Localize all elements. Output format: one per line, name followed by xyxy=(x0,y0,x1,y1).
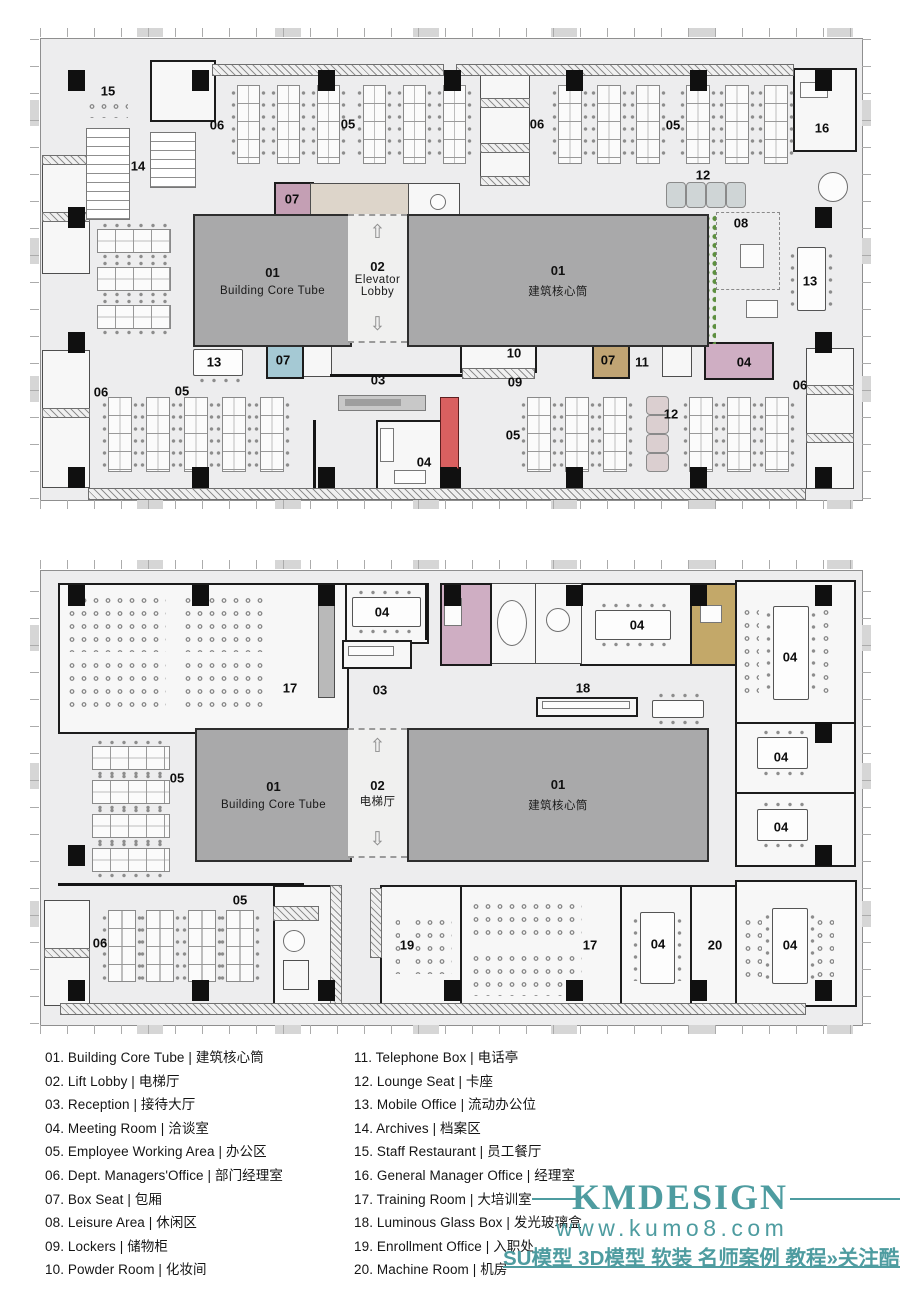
legend-item: 14. Archives | 档案区 xyxy=(354,1117,582,1141)
hatched-wall xyxy=(42,155,90,165)
desk-bank xyxy=(317,85,340,164)
room xyxy=(42,220,90,274)
legend-item: 05. Employee Working Area | 办公区 xyxy=(45,1140,283,1164)
plan1-elevator-lobby: ⇧ 02 Elevator Lobby ⇩ xyxy=(348,214,407,343)
room-number-label: 12 xyxy=(696,168,710,183)
room-number-label: 17 xyxy=(583,938,597,953)
legend-item: 15. Staff Restaurant | 员工餐厅 xyxy=(354,1140,582,1164)
room-number-label: 05 xyxy=(233,893,247,908)
hatched-wall xyxy=(462,368,535,379)
archive-shelves xyxy=(86,128,130,220)
shaft xyxy=(318,600,335,698)
plan2-facade-top xyxy=(40,560,861,569)
desk-bank xyxy=(92,848,170,872)
structural-column xyxy=(68,980,85,1001)
structural-column xyxy=(815,722,832,743)
structural-column xyxy=(68,585,85,606)
desk-bank xyxy=(97,229,171,253)
room-number-label: 13 xyxy=(803,274,817,289)
desk-bank xyxy=(565,397,589,472)
room-number-label: 07 xyxy=(285,192,299,207)
room-number-label: 08 xyxy=(734,216,748,231)
lounge-seat xyxy=(666,182,686,208)
hatched-wall xyxy=(44,948,90,958)
desk-bank xyxy=(97,305,171,329)
chair-rows xyxy=(741,606,759,694)
lobby-number: 02 xyxy=(360,778,396,793)
plan2-facade-right xyxy=(862,570,871,1024)
furniture xyxy=(746,300,778,318)
legend-item: 01. Building Core Tube | 建筑核心筒 xyxy=(45,1046,283,1070)
round-table xyxy=(818,172,848,202)
legend-item: 11. Telephone Box | 电话亭 xyxy=(354,1046,582,1070)
desk-bank xyxy=(92,746,170,770)
structural-column xyxy=(815,467,832,488)
desk-bank xyxy=(764,85,788,164)
wall-block xyxy=(440,467,457,488)
wall xyxy=(313,420,316,488)
hatched-wall xyxy=(88,488,806,500)
hatched-wall xyxy=(806,433,854,443)
structural-column xyxy=(566,980,583,1001)
lounge-seat xyxy=(646,434,669,453)
desk-bank xyxy=(108,910,136,982)
core-number: 01 xyxy=(265,265,279,280)
structural-column xyxy=(318,980,335,1001)
hatched-wall xyxy=(480,98,530,108)
room-number-label: 11 xyxy=(635,355,649,370)
structural-column xyxy=(444,70,461,91)
desk-bank xyxy=(363,85,386,164)
room xyxy=(480,66,530,185)
wall xyxy=(58,883,304,886)
structural-column xyxy=(815,332,832,353)
desk-bank xyxy=(108,397,132,472)
desk-bank xyxy=(765,397,789,472)
core-number: 01 xyxy=(266,779,280,794)
down-arrow-icon: ⇩ xyxy=(370,830,386,849)
room-number-label: 06 xyxy=(793,378,807,393)
desk-bank xyxy=(237,85,260,164)
hatched-wall xyxy=(370,888,382,958)
room-number-label: 04 xyxy=(774,820,788,835)
structural-column xyxy=(815,845,832,866)
desk-bank xyxy=(558,85,582,164)
round-table xyxy=(546,608,570,632)
plan1-facade-bottom xyxy=(40,500,861,509)
room-number-label: 05 xyxy=(170,771,184,786)
structural-column xyxy=(566,70,583,91)
archive-shelves xyxy=(150,132,196,188)
structural-column xyxy=(68,70,85,91)
room-number-label: 14 xyxy=(131,159,145,174)
desk-bank xyxy=(184,397,208,472)
structural-column xyxy=(690,980,707,1001)
legend-item: 09. Lockers | 储物柜 xyxy=(45,1235,283,1259)
lobby-name-line2: Lobby xyxy=(355,286,400,298)
plan1-facade-right xyxy=(862,38,871,499)
chair-rows xyxy=(814,916,834,978)
lounge-seat xyxy=(726,182,746,208)
structural-column xyxy=(192,585,209,606)
room-number-label: 04 xyxy=(783,938,797,953)
chair-rows xyxy=(66,659,166,715)
desk-bank xyxy=(727,397,751,472)
desk-bank xyxy=(686,85,710,164)
structural-column xyxy=(815,207,832,228)
room-number-label: 18 xyxy=(576,681,590,696)
room-number-label: 13 xyxy=(207,355,221,370)
structural-column xyxy=(192,980,209,1001)
legend-item: 07. Box Seat | 包厢 xyxy=(45,1188,283,1212)
room-number-label: 04 xyxy=(630,618,644,633)
room-number-label: 20 xyxy=(708,938,722,953)
desk-bank xyxy=(603,397,627,472)
hatched-wall xyxy=(456,64,794,76)
red-accent-wall xyxy=(440,397,459,469)
plan1-facade-top xyxy=(40,28,861,37)
chair-rows xyxy=(742,916,762,978)
structural-column xyxy=(815,980,832,1001)
structural-column xyxy=(444,585,461,606)
room xyxy=(42,350,90,412)
hatched-wall xyxy=(273,906,319,921)
room-number-label: 05 xyxy=(341,117,355,132)
structural-column xyxy=(192,467,209,488)
structural-column xyxy=(815,585,832,606)
room xyxy=(662,344,692,377)
legend-item: 02. Lift Lobby | 电梯厅 xyxy=(45,1070,283,1094)
chair-rows xyxy=(470,900,582,942)
structural-column xyxy=(318,585,335,606)
room-number-label: 09 xyxy=(508,375,522,390)
website-url: www.kumo8.com xyxy=(556,1215,788,1242)
desk-bank xyxy=(636,85,660,164)
room-number-label: 03 xyxy=(371,373,385,388)
core-name: 建筑核心筒 xyxy=(528,283,588,299)
room-number-label: 06 xyxy=(94,385,108,400)
hatched-wall xyxy=(42,408,90,418)
desk-bank xyxy=(97,267,171,291)
room-number-label: 04 xyxy=(651,937,665,952)
plan1-core-tube-left: 01 Building Core Tube xyxy=(193,214,352,347)
room-number-label: 04 xyxy=(417,455,431,470)
lobby-number: 02 xyxy=(355,259,400,274)
desk-bank xyxy=(403,85,426,164)
core-name: Building Core Tube xyxy=(221,799,326,811)
core-number: 01 xyxy=(551,263,565,278)
structural-column xyxy=(68,845,85,866)
legend-item: 10. Powder Room | 化妆间 xyxy=(45,1258,283,1282)
structural-column xyxy=(690,467,707,488)
room-number-label: 05 xyxy=(666,118,680,133)
room-number-label: 04 xyxy=(737,355,751,370)
desk-bank xyxy=(725,85,749,164)
chair-rows xyxy=(412,916,452,974)
brand-logo: KMDESIGN xyxy=(568,1176,792,1218)
plan2-elevator-lobby: ⇧ 02 电梯厅 ⇩ xyxy=(348,728,407,858)
hatched-wall xyxy=(480,143,530,153)
legend-item: 03. Reception | 接待大厅 xyxy=(45,1093,283,1117)
room-number-label: 12 xyxy=(664,407,678,422)
structural-column xyxy=(444,980,461,1001)
up-arrow-icon: ⇧ xyxy=(370,223,386,242)
room-number-label: 05 xyxy=(175,384,189,399)
round-table xyxy=(497,600,527,646)
room-number-label: 07 xyxy=(276,353,290,368)
structural-column xyxy=(690,585,707,606)
structural-column xyxy=(68,467,85,488)
desk-bank xyxy=(92,814,170,838)
desk-bank xyxy=(277,85,300,164)
furniture xyxy=(380,428,394,462)
desk-bank xyxy=(597,85,621,164)
legend-item: 12. Lounge Seat | 卡座 xyxy=(354,1070,582,1094)
legend-item: 06. Dept. Managers'Office | 部门经理室 xyxy=(45,1164,283,1188)
desk-bank xyxy=(527,397,551,472)
lounge-seat xyxy=(706,182,726,208)
hatched-wall xyxy=(60,1003,806,1015)
room-number-label: 06 xyxy=(210,118,224,133)
room-number-label: 16 xyxy=(815,121,829,136)
core-number: 01 xyxy=(551,777,565,792)
structural-column xyxy=(566,585,583,606)
desk-bank xyxy=(443,85,466,164)
room xyxy=(300,344,332,377)
furniture xyxy=(700,605,722,623)
structural-column xyxy=(192,70,209,91)
furniture xyxy=(348,646,394,656)
desk-bank xyxy=(689,397,713,472)
plan1-facade-left xyxy=(30,38,39,499)
room-number-label: 05 xyxy=(506,428,520,443)
legend-column-left: 01. Building Core Tube | 建筑核心筒02. Lift L… xyxy=(45,1046,283,1282)
room xyxy=(283,960,309,990)
structural-column xyxy=(318,70,335,91)
lobby-name-line1: Elevator xyxy=(355,274,400,286)
round-table xyxy=(430,194,446,210)
chair-rows xyxy=(86,100,128,118)
footer-rule xyxy=(503,1266,900,1268)
room xyxy=(806,348,854,388)
lobby-name-line1: 电梯厅 xyxy=(360,793,396,809)
furniture xyxy=(740,244,764,268)
desk-bank xyxy=(92,780,170,804)
brand-rule-left xyxy=(532,1198,576,1200)
plan1-core-tube-right: 01 建筑核心筒 xyxy=(407,214,709,347)
wall xyxy=(330,374,462,377)
service-strip xyxy=(310,183,409,216)
room xyxy=(806,393,854,436)
meeting-table xyxy=(652,700,704,718)
room-number-label: 06 xyxy=(93,936,107,951)
desk-bank xyxy=(146,910,174,982)
desk-bank xyxy=(146,397,170,472)
up-arrow-icon: ⇧ xyxy=(370,737,386,756)
structural-column xyxy=(566,467,583,488)
lounge-seat xyxy=(646,453,669,472)
room-number-label: 04 xyxy=(774,750,788,765)
legend-item: 04. Meeting Room | 洽谈室 xyxy=(45,1117,283,1141)
legend-item: 08. Leisure Area | 休闲区 xyxy=(45,1211,283,1235)
structural-column xyxy=(815,70,832,91)
desk-bank xyxy=(260,397,284,472)
structural-column xyxy=(318,467,335,488)
hatched-wall xyxy=(480,176,530,186)
wall xyxy=(425,583,428,640)
room-number-label: 17 xyxy=(283,681,297,696)
down-arrow-icon: ⇩ xyxy=(370,315,386,334)
legend-item: 18. Luminous Glass Box | 发光玻璃盒 xyxy=(354,1211,582,1235)
lounge-seat xyxy=(686,182,706,208)
plan2-core-tube-right: 01 建筑核心筒 xyxy=(407,728,709,862)
furniture xyxy=(394,470,426,484)
chair-rows xyxy=(182,659,266,715)
chair-rows xyxy=(820,606,834,694)
reception-desk xyxy=(338,395,426,411)
room-number-label: 06 xyxy=(530,117,544,132)
room xyxy=(44,900,90,950)
core-name: 建筑核心筒 xyxy=(528,797,588,813)
desk-bank xyxy=(226,910,254,982)
room-number-label: 19 xyxy=(400,938,414,953)
room-number-label: 04 xyxy=(375,605,389,620)
room-number-label: 10 xyxy=(507,346,521,361)
desk-bank xyxy=(188,910,216,982)
room-number-label: 15 xyxy=(101,84,115,99)
legend-item: 16. General Manager Office | 经理室 xyxy=(354,1164,582,1188)
desk-bank xyxy=(222,397,246,472)
structural-column xyxy=(690,70,707,91)
floor-plan-sheet: 01 Building Core Tube ⇧ 02 Elevator Lobb… xyxy=(0,0,900,1300)
plan2-facade-left xyxy=(30,570,39,1024)
room-number-label: 03 xyxy=(373,683,387,698)
legend-item: 13. Mobile Office | 流动办公位 xyxy=(354,1093,582,1117)
furniture xyxy=(542,701,630,709)
round-table xyxy=(283,930,305,952)
room-number-label: 07 xyxy=(601,353,615,368)
plan2-facade-bottom xyxy=(40,1025,861,1034)
hatched-wall xyxy=(806,385,854,395)
room-number-label: 04 xyxy=(783,650,797,665)
brand-rule-right xyxy=(790,1198,900,1200)
structural-column xyxy=(68,207,85,228)
plan2-core-tube-left: 01 Building Core Tube xyxy=(195,728,352,862)
structural-column xyxy=(68,332,85,353)
core-name: Building Core Tube xyxy=(220,285,325,297)
